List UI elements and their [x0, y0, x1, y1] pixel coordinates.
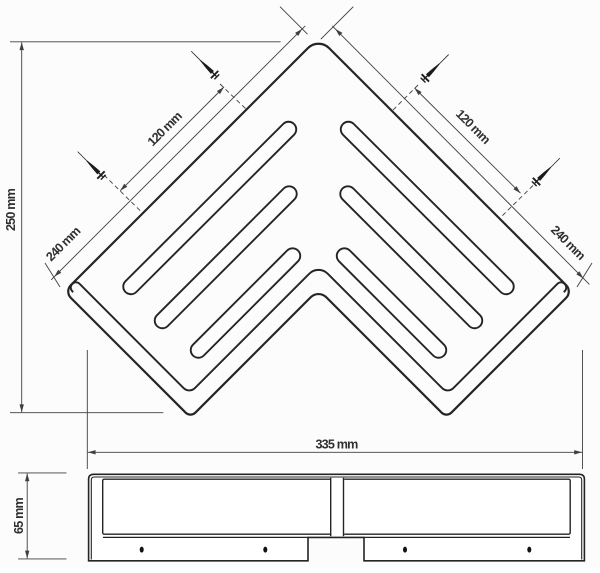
svg-text:65 mm: 65 mm	[12, 497, 26, 534]
svg-text:335 mm: 335 mm	[315, 437, 358, 451]
svg-text:250 mm: 250 mm	[4, 188, 18, 231]
